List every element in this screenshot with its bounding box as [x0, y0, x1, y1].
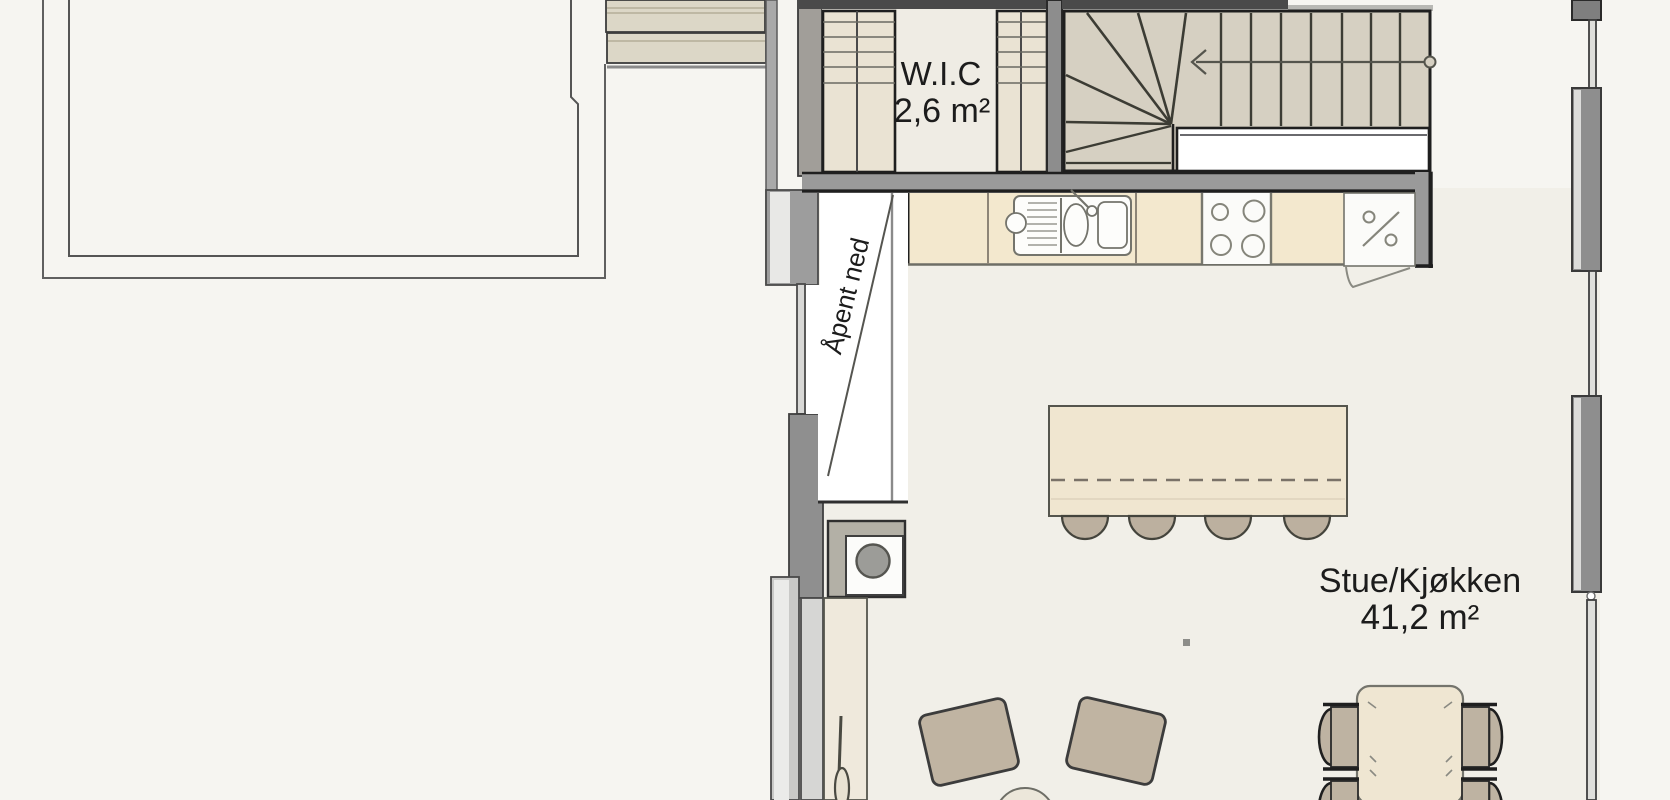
svg-text:W.I.C: W.I.C — [901, 55, 982, 92]
svg-text:2,6 m²: 2,6 m² — [894, 92, 990, 130]
svg-text:41,2 m²: 41,2 m² — [1361, 598, 1480, 637]
svg-text:Stue/Kjøkken: Stue/Kjøkken — [1319, 562, 1521, 600]
